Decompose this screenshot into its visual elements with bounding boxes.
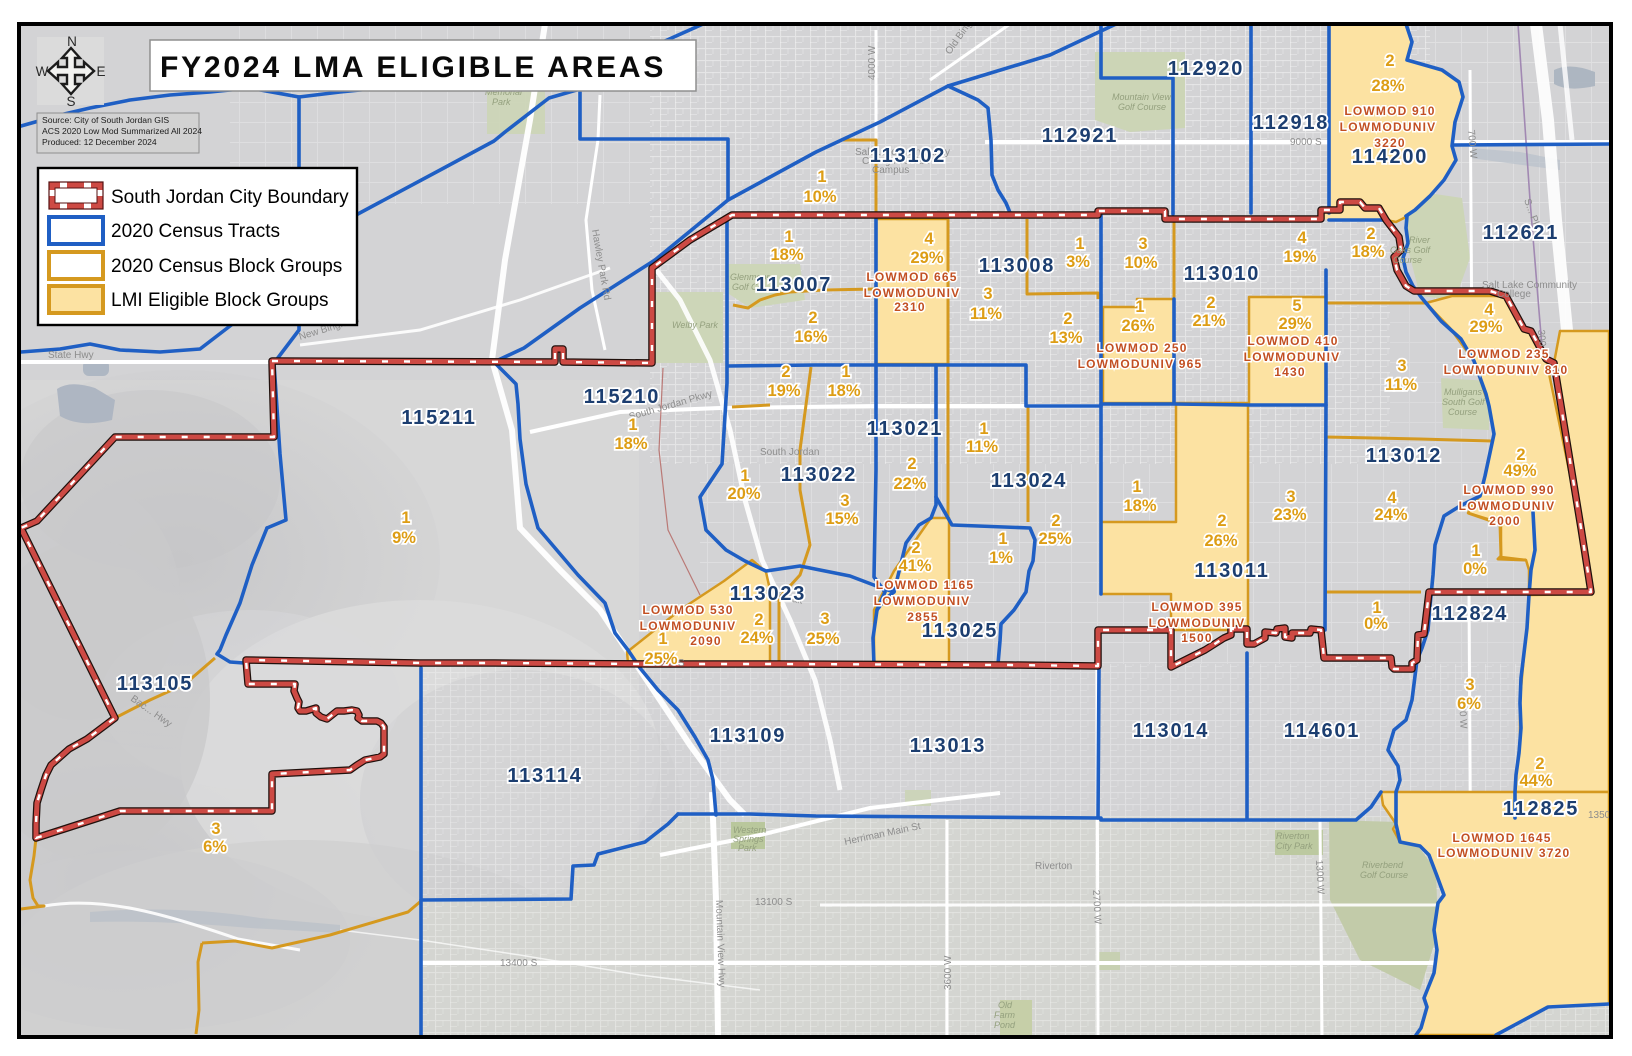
svg-text:W: W (36, 64, 49, 79)
svg-text:Farm: Farm (994, 1010, 1016, 1020)
svg-text:Source: City of South Jordan G: Source: City of South Jordan GIS (42, 115, 169, 125)
svg-text:4: 4 (1484, 301, 1494, 319)
svg-text:113013: 113013 (910, 735, 986, 757)
svg-text:4: 4 (1297, 229, 1307, 247)
svg-text:112918: 112918 (1253, 112, 1329, 134)
svg-text:25%: 25% (644, 650, 677, 668)
svg-text:2: 2 (1051, 512, 1060, 530)
svg-text:29%: 29% (1469, 318, 1502, 336)
svg-text:113007: 113007 (756, 274, 832, 296)
svg-text:1: 1 (1135, 298, 1144, 316)
svg-text:26%: 26% (1121, 317, 1154, 335)
svg-text:2700 W: 2700 W (1090, 890, 1103, 926)
svg-text:113109: 113109 (710, 725, 786, 747)
svg-text:4: 4 (1387, 489, 1397, 507)
svg-text:3: 3 (1138, 235, 1147, 253)
svg-text:2: 2 (907, 455, 916, 473)
svg-text:11%: 11% (1385, 376, 1417, 394)
svg-text:FY2024 LMA ELIGIBLE AREAS: FY2024 LMA ELIGIBLE AREAS (160, 51, 666, 84)
svg-text:0%: 0% (1364, 615, 1388, 633)
svg-text:114601: 114601 (1284, 720, 1360, 742)
svg-text:113114: 113114 (507, 765, 582, 787)
svg-text:9000 S: 9000 S (1290, 137, 1322, 148)
svg-text:1: 1 (1075, 235, 1084, 253)
svg-text:26%: 26% (1204, 532, 1237, 550)
svg-text:2: 2 (808, 309, 817, 327)
svg-text:Course: Course (1393, 255, 1422, 265)
svg-text:1500: 1500 (1181, 631, 1213, 645)
svg-text:3: 3 (983, 285, 992, 303)
svg-text:Produced: 12 December 2024: Produced: 12 December 2024 (42, 137, 157, 147)
svg-text:2: 2 (1217, 512, 1226, 530)
svg-text:Mountain View: Mountain View (1112, 92, 1171, 102)
svg-text:1: 1 (979, 420, 988, 438)
svg-text:LOWMOD 1645: LOWMOD 1645 (1452, 831, 1551, 845)
svg-text:Oaks Golf: Oaks Golf (1390, 245, 1432, 255)
svg-text:LOWMOD 235: LOWMOD 235 (1458, 347, 1549, 361)
svg-text:S: S (66, 94, 75, 109)
svg-text:113023: 113023 (730, 583, 806, 605)
svg-text:1: 1 (1471, 542, 1480, 560)
svg-text:1: 1 (1132, 478, 1141, 496)
svg-text:1: 1 (740, 467, 749, 485)
svg-text:3: 3 (1397, 357, 1406, 375)
svg-text:LOWMOD 395: LOWMOD 395 (1151, 600, 1242, 614)
svg-text:1: 1 (401, 509, 410, 527)
svg-text:LOWMOD 250: LOWMOD 250 (1096, 341, 1187, 355)
svg-text:Riverton: Riverton (1276, 831, 1310, 841)
svg-text:LOWMODUNIV: LOWMODUNIV (1244, 350, 1341, 364)
svg-text:Welby Park: Welby Park (672, 320, 718, 330)
svg-text:0%: 0% (1463, 560, 1487, 578)
svg-text:LOWMOD 910: LOWMOD 910 (1344, 104, 1435, 118)
svg-text:2000: 2000 (1489, 514, 1521, 528)
svg-text:N: N (67, 34, 77, 49)
svg-text:13%: 13% (1049, 329, 1082, 347)
svg-text:10%: 10% (1124, 254, 1157, 272)
svg-text:49%: 49% (1503, 462, 1536, 480)
svg-text:41%: 41% (898, 557, 931, 575)
svg-text:3600 W: 3600 W (943, 955, 954, 990)
svg-text:23%: 23% (1273, 506, 1306, 524)
svg-text:LOWMOD 530: LOWMOD 530 (642, 603, 733, 617)
svg-text:Park: Park (492, 97, 511, 107)
svg-text:3: 3 (1465, 676, 1474, 694)
svg-text:2: 2 (911, 539, 920, 557)
svg-text:3: 3 (840, 492, 849, 510)
svg-text:115210: 115210 (584, 386, 660, 408)
svg-text:13100 S: 13100 S (755, 897, 793, 908)
svg-text:6%: 6% (1457, 695, 1481, 713)
svg-text:24%: 24% (1374, 506, 1407, 524)
svg-text:18%: 18% (770, 246, 803, 264)
svg-text:2: 2 (1063, 310, 1072, 328)
svg-text:Pond: Pond (994, 1020, 1016, 1030)
svg-text:LOWMODUNIV 965: LOWMODUNIV 965 (1078, 357, 1203, 371)
svg-text:South Jordan City Boundary: South Jordan City Boundary (111, 187, 349, 208)
svg-text:113012: 113012 (1366, 445, 1442, 467)
svg-text:113105: 113105 (117, 673, 193, 695)
svg-text:3: 3 (820, 610, 829, 628)
svg-text:11%: 11% (966, 438, 998, 456)
svg-text:3: 3 (1286, 488, 1295, 506)
svg-text:113024: 113024 (991, 470, 1067, 492)
svg-text:113011: 113011 (1194, 560, 1269, 582)
svg-text:21%: 21% (1192, 312, 1225, 330)
svg-text:113008: 113008 (979, 255, 1055, 277)
svg-text:LOWMODUNIV: LOWMODUNIV (1459, 499, 1556, 513)
svg-text:River: River (1409, 235, 1431, 245)
svg-text:LOWMODUNIV: LOWMODUNIV (874, 594, 971, 608)
svg-text:115211: 115211 (401, 407, 476, 429)
svg-text:South Jordan: South Jordan (760, 447, 820, 458)
svg-text:112825: 112825 (1503, 798, 1579, 820)
svg-text:9%: 9% (392, 529, 416, 547)
svg-text:2020 Census Tracts: 2020 Census Tracts (111, 221, 280, 242)
svg-text:113010: 113010 (1184, 263, 1260, 285)
svg-text:10%: 10% (803, 188, 836, 206)
svg-text:LOWMOD 1165: LOWMOD 1165 (876, 578, 975, 592)
svg-text:112920: 112920 (1168, 58, 1244, 80)
svg-text:2: 2 (754, 611, 763, 629)
svg-text:6%: 6% (203, 838, 227, 856)
svg-text:18%: 18% (614, 435, 647, 453)
svg-text:1: 1 (841, 363, 850, 381)
svg-text:29%: 29% (910, 249, 943, 267)
svg-text:ACS 2020 Low Mod Summarized Al: ACS 2020 Low Mod Summarized All 2024 (42, 126, 202, 136)
svg-text:LOWMODUNIV: LOWMODUNIV (640, 619, 737, 633)
svg-text:City Park: City Park (1276, 841, 1313, 851)
svg-text:Mulligans: Mulligans (1444, 387, 1483, 397)
svg-text:29%: 29% (1278, 315, 1311, 333)
svg-text:LMI Eligible Block Groups: LMI Eligible Block Groups (111, 290, 329, 311)
svg-text:LOWMODUNIV 3720: LOWMODUNIV 3720 (1438, 846, 1571, 860)
svg-text:3%: 3% (1066, 253, 1090, 271)
svg-text:18%: 18% (827, 382, 860, 400)
svg-text:1%: 1% (989, 549, 1013, 567)
svg-text:3220: 3220 (1374, 136, 1406, 150)
svg-text:112824: 112824 (1432, 603, 1508, 625)
svg-text:Old: Old (998, 1000, 1013, 1010)
svg-text:1: 1 (784, 228, 793, 246)
svg-text:LOWMOD 410: LOWMOD 410 (1247, 334, 1338, 348)
svg-text:25%: 25% (1038, 530, 1071, 548)
svg-text:3: 3 (211, 820, 220, 838)
svg-text:College: College (1497, 289, 1531, 300)
svg-text:112621: 112621 (1483, 222, 1559, 244)
svg-text:Riverbend: Riverbend (1362, 860, 1404, 870)
svg-text:South Golf: South Golf (1442, 397, 1486, 407)
svg-text:13400 S: 13400 S (500, 958, 538, 969)
svg-text:4000 W: 4000 W (867, 45, 878, 80)
svg-text:2: 2 (1366, 225, 1375, 243)
svg-text:2: 2 (1385, 52, 1394, 70)
svg-text:Riverton: Riverton (1035, 861, 1072, 872)
svg-text:LOWMODUNIV: LOWMODUNIV (1340, 120, 1437, 134)
svg-text:13500 S: 13500 S (1588, 810, 1626, 821)
svg-text:18%: 18% (1123, 497, 1156, 515)
svg-text:19%: 19% (1283, 248, 1316, 266)
svg-text:113022: 113022 (781, 464, 857, 486)
svg-text:2310: 2310 (894, 300, 926, 314)
svg-text:LOWMODUNIV: LOWMODUNIV (864, 286, 961, 300)
svg-text:2020 Census Block Groups: 2020 Census Block Groups (111, 256, 342, 277)
svg-text:113102: 113102 (870, 145, 946, 167)
svg-text:11%: 11% (970, 305, 1002, 323)
svg-text:2090: 2090 (690, 634, 722, 648)
svg-text:18%: 18% (1351, 243, 1384, 261)
svg-text:1300 W: 1300 W (1313, 860, 1326, 896)
svg-text:2: 2 (1535, 755, 1544, 773)
svg-text:4: 4 (924, 230, 934, 248)
svg-text:19%: 19% (767, 382, 800, 400)
svg-text:LOWMOD 990: LOWMOD 990 (1463, 483, 1554, 497)
svg-text:Golf Course: Golf Course (1360, 870, 1408, 880)
svg-text:22%: 22% (893, 475, 926, 493)
svg-text:LOWMOD 665: LOWMOD 665 (866, 270, 957, 284)
svg-text:State Hwy: State Hwy (48, 350, 94, 361)
svg-text:Golf Course: Golf Course (1118, 102, 1166, 112)
svg-text:28%: 28% (1371, 77, 1404, 95)
svg-text:113021: 113021 (867, 418, 943, 440)
svg-text:1430: 1430 (1274, 365, 1306, 379)
svg-text:5: 5 (1292, 297, 1301, 315)
svg-text:LOWMODUNIV: LOWMODUNIV (1149, 616, 1246, 630)
svg-text:2: 2 (1206, 294, 1215, 312)
svg-text:20%: 20% (727, 485, 760, 503)
svg-text:113014: 113014 (1133, 720, 1209, 742)
svg-text:1: 1 (998, 530, 1007, 548)
svg-text:24%: 24% (740, 629, 773, 647)
svg-text:25%: 25% (806, 630, 839, 648)
svg-text:1: 1 (628, 416, 637, 434)
svg-text:Course: Course (1448, 407, 1477, 417)
svg-text:44%: 44% (1519, 772, 1552, 790)
svg-text:16%: 16% (794, 328, 827, 346)
svg-text:1: 1 (817, 168, 826, 186)
svg-text:2855: 2855 (907, 610, 939, 624)
svg-text:2: 2 (781, 363, 790, 381)
svg-text:E: E (96, 64, 105, 79)
svg-text:15%: 15% (825, 510, 858, 528)
svg-text:Park: Park (738, 843, 757, 853)
svg-text:112921: 112921 (1042, 125, 1118, 147)
svg-text:LOWMODUNIV 810: LOWMODUNIV 810 (1444, 363, 1569, 377)
